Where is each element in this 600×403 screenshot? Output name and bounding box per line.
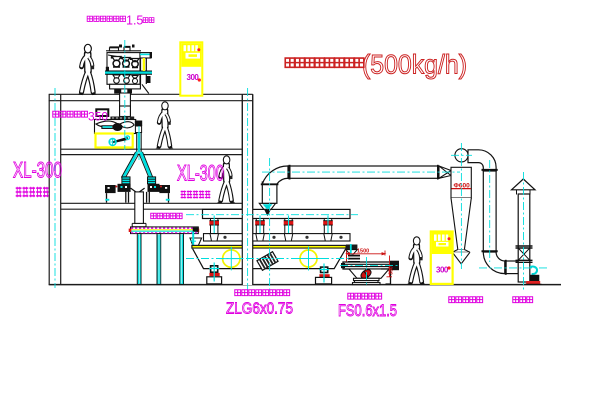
svg-text:ZLG6x0.75: ZLG6x0.75: [226, 301, 293, 318]
svg-text:XL-300: XL-300: [13, 158, 62, 183]
svg-text:1.5: 1.5: [126, 14, 143, 28]
svg-text:1500: 1500: [357, 249, 369, 255]
svg-text:300: 300: [436, 266, 449, 275]
svg-text:(500kg/h): (500kg/h): [362, 50, 467, 80]
svg-text:FS0.6x1.5: FS0.6x1.5: [338, 301, 397, 320]
svg-text:350: 350: [389, 266, 395, 275]
svg-text:300: 300: [187, 73, 200, 82]
svg-text:350: 350: [88, 110, 108, 124]
svg-text:XL-300: XL-300: [177, 161, 224, 186]
